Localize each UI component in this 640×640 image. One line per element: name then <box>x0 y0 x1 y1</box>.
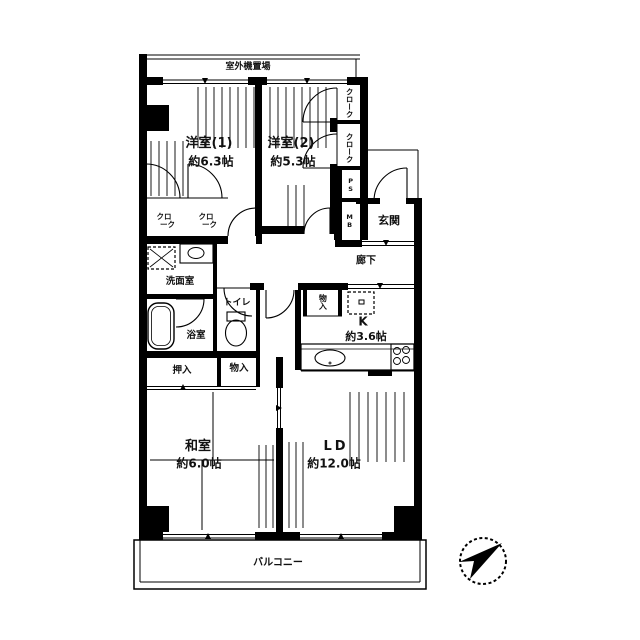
room-kitchen-size: 約3.6帖 <box>345 331 387 343</box>
room-japanese-size: 約6.0帖 <box>176 457 221 470</box>
room-japanese-name: 和室 <box>185 440 211 454</box>
cloak-left-a-label: クローク <box>153 213 175 230</box>
ps-label: PS <box>346 177 353 193</box>
room-kitchen-name: K <box>358 315 367 328</box>
compass-icon <box>459 538 506 584</box>
toilet-bowl <box>226 320 247 346</box>
cloak-left-a-line2: ーク <box>153 221 175 229</box>
balcony-label: バルコニー <box>253 558 303 569</box>
entrance-label: 玄関 <box>378 215 400 227</box>
fridge-space <box>348 292 374 314</box>
wash-basin <box>188 248 204 259</box>
storage-vertical-label: 物入 <box>318 294 327 310</box>
room-western2-name: 洋室(2) <box>268 137 315 151</box>
cloak-right-2-label: クローク <box>345 133 353 163</box>
outdoor-unit-label: 室外機置場 <box>225 63 270 73</box>
floor-plan-drawing <box>0 0 640 640</box>
bathroom-label: 浴室 <box>186 331 205 341</box>
room-western1-size: 約6.3帖 <box>188 155 233 168</box>
stove <box>391 344 414 370</box>
room-ld-size: 約12.0帖 <box>307 457 361 470</box>
washroom-label: 洗面室 <box>166 277 195 287</box>
room-western1-name: 洋室(1) <box>186 137 233 151</box>
mb-label: MB <box>345 213 352 229</box>
room-ld-name: LD <box>323 440 348 454</box>
toilet-label: トイレ <box>223 299 250 309</box>
cloak-left-b-line2: ーク <box>195 221 217 229</box>
hallway-label: 廊下 <box>356 256 376 267</box>
wash-basin-counter <box>180 244 213 263</box>
cloak-left-b-label: クローク <box>195 213 217 230</box>
room-western2-size: 約5.3帖 <box>270 155 315 168</box>
floor-plan: 室外機置場 洋室(1) 約6.3帖 洋室(2) 約5.3帖 クローク クローク … <box>0 0 640 640</box>
oshiire-label: 押入 <box>172 366 191 376</box>
cloak-right-1-label: クローク <box>345 88 353 118</box>
storage-h-label: 物入 <box>229 364 248 374</box>
